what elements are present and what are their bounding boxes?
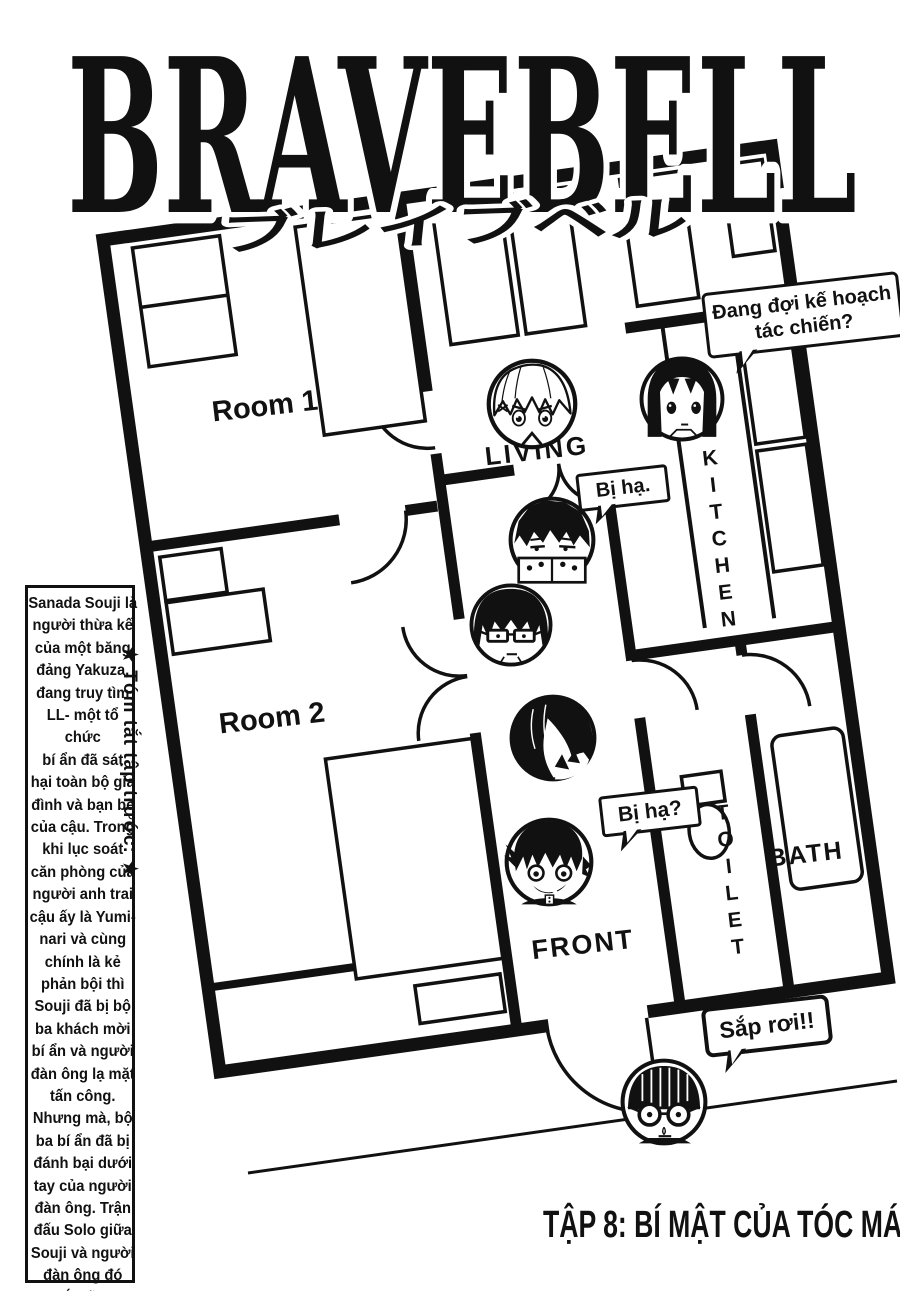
room2-bed [325,739,502,979]
chapter-title: TẬP 8: BÍ MẬT CỦA TÓC MÁI. [543,1204,837,1247]
speech-text: Đang đợi kế hoạch tác chiến? [711,282,892,343]
storage-drawer [415,974,505,1024]
manga-page: BRAVEBELL BRAVEBELL ブレイブベル ブレイブベル Room 1… [0,0,900,1291]
long-black-haired-girl-icon [638,355,726,443]
goggles-kid-icon [619,1057,709,1147]
room2-closet [166,589,270,654]
speech-text: Sắp rơi!! [718,1007,816,1044]
speech-text: Bị hạ? [617,796,683,826]
panel-edge-line [248,1081,897,1173]
room2-shelf [160,549,228,601]
glasses-boy-icon [468,582,554,668]
speech-text: Bị hạ. [595,474,652,502]
white-haired-girl-icon [485,357,579,451]
bangs-covered-face-icon [508,693,598,783]
title-logo: BRAVEBELL BRAVEBELL ブレイブベル ブレイブベル [0,0,900,280]
recap-vertical-label: ★ Tóm tắt tập trước: ★ [118,646,141,878]
fang-grin-girl-icon [503,816,595,908]
